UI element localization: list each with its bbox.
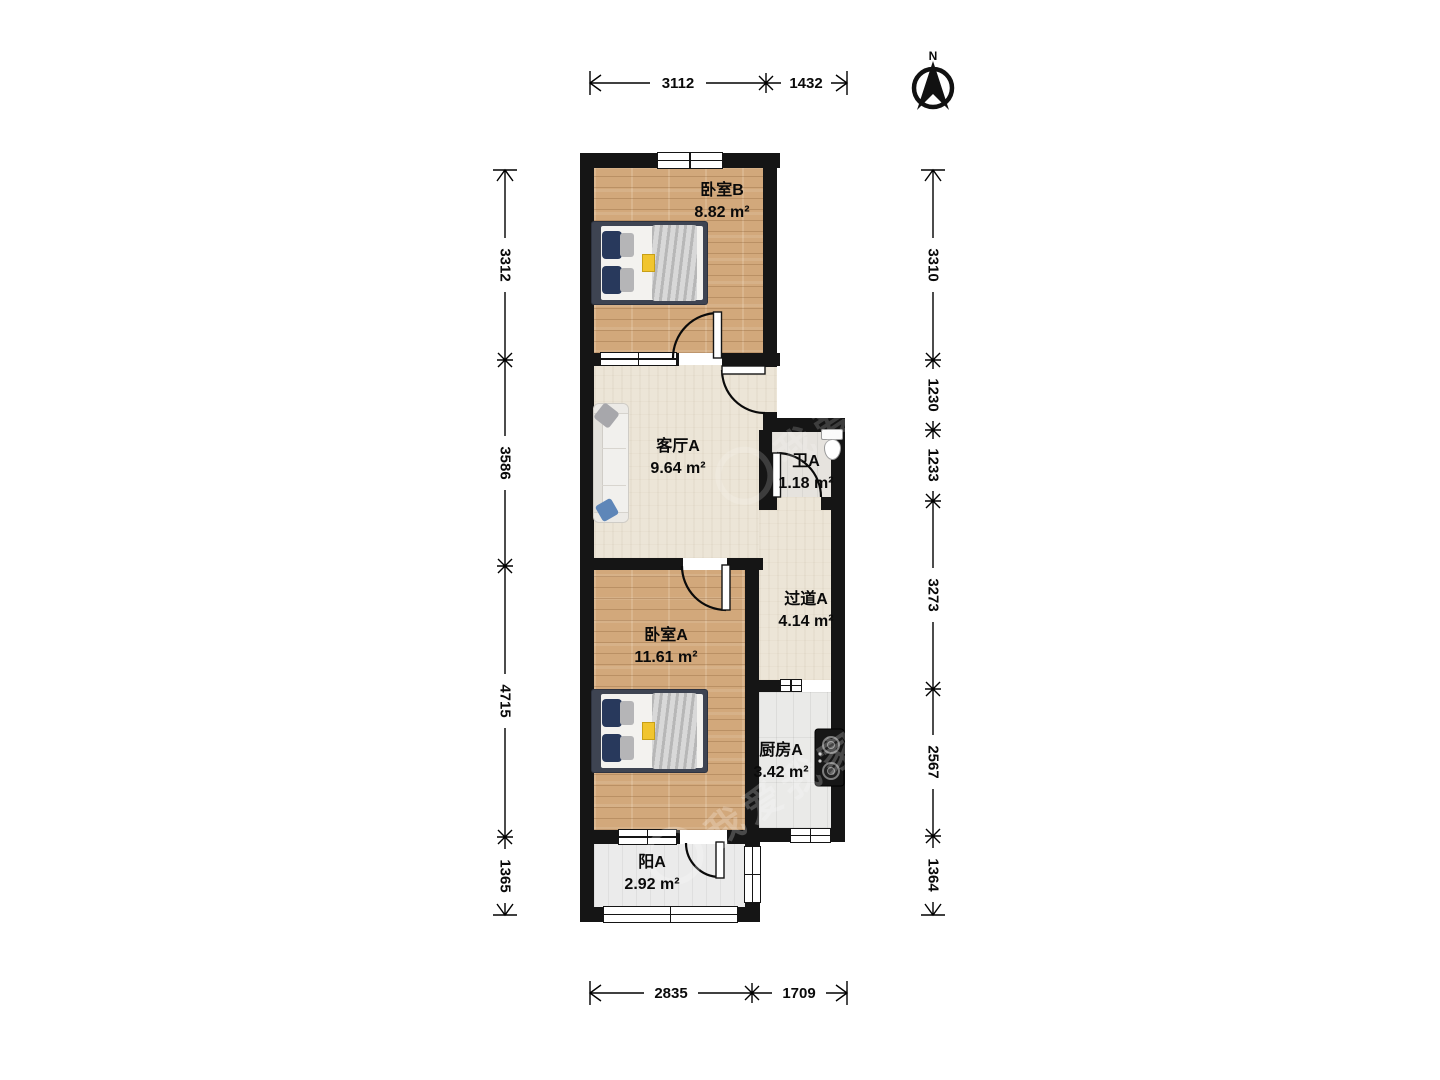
bed-icon-bedroom-a (592, 690, 707, 772)
sofa-icon (593, 403, 629, 523)
wall-right-upper (763, 153, 777, 367)
room-area: 8.82 m² (694, 202, 749, 224)
dim-value: 2567 (925, 745, 942, 778)
wall-bedroom-b-bottom-right (722, 353, 780, 366)
room-name: 过道A (778, 589, 833, 611)
bed-duvet (652, 225, 697, 301)
room-label-kitchen: 厨房A 3.42 m² (753, 740, 808, 784)
room-name: 厨房A (753, 740, 808, 762)
dimension-top: 3112 1432 (590, 71, 847, 95)
dim-value: 3273 (925, 578, 942, 611)
room-label-bathroom: 卫A 1.18 m² (778, 451, 833, 495)
dim-value: 1432 (789, 75, 822, 92)
compass-icon: N (914, 49, 952, 110)
room-area: 4.14 m² (778, 611, 833, 633)
window-bedroom-b-living (600, 352, 677, 366)
dimension-left: 3312 3586 4715 1365 (493, 170, 517, 915)
bed-tray-icon (642, 722, 655, 740)
wall-bathroom-bottom-left (759, 497, 777, 510)
window-balcony-bottom (603, 906, 738, 923)
dim-value: 4715 (497, 684, 514, 717)
room-name: 卧室A (634, 625, 697, 647)
room-area: 2.92 m² (624, 874, 679, 896)
pillow-icon (602, 266, 622, 294)
room-label-hallway: 过道A 4.14 m² (778, 589, 833, 633)
room-name: 卫A (778, 451, 833, 473)
dim-value: 3312 (497, 248, 514, 281)
room-area: 1.18 m² (778, 473, 833, 495)
room-label-balcony: 阳A 2.92 m² (624, 852, 679, 896)
pillow-icon (602, 699, 622, 727)
pillow-icon (602, 734, 622, 762)
floor-plan-page: 我爱我家 我爱我家 3112 1432 2835 1709 (0, 0, 1440, 1080)
sofa-seam (602, 485, 626, 486)
bed-icon-bedroom-b (592, 222, 707, 304)
dim-value: 1233 (925, 448, 942, 481)
dim-value: 3112 (662, 75, 695, 92)
bed-tray-icon (642, 254, 655, 272)
dim-value: 1365 (497, 859, 514, 892)
room-label-bedroom-a: 卧室A 11.61 m² (634, 625, 697, 669)
room-label-bedroom-b: 卧室B 8.82 m² (694, 180, 749, 224)
room-name: 客厅A (650, 436, 705, 458)
dim-value: 3586 (497, 446, 514, 479)
window-balcony-right (744, 846, 761, 903)
pillow-icon (620, 736, 634, 760)
pillow-icon (620, 233, 634, 257)
room-area: 9.64 m² (650, 458, 705, 480)
pillow-icon (620, 268, 634, 292)
stove-icon (814, 728, 846, 788)
room-name: 阳A (624, 852, 679, 874)
dim-value: 1230 (925, 378, 942, 411)
dimension-right: 3310 1230 1233 3273 2567 1364 (921, 170, 945, 915)
room-area: 3.42 m² (753, 762, 808, 784)
bed-duvet (652, 693, 697, 769)
room-name: 卧室B (694, 180, 749, 202)
wall-living-bottom-left (580, 558, 683, 570)
pillow-icon (602, 231, 622, 259)
compass-north-label: N (929, 49, 938, 63)
dim-value: 3310 (925, 248, 942, 281)
dim-value: 1709 (782, 985, 815, 1002)
dim-value: 1364 (925, 858, 942, 892)
sofa-seam (602, 448, 626, 449)
window-bedroom-b-top (657, 152, 723, 169)
pillow-icon (620, 701, 634, 725)
dimension-bottom: 2835 1709 (590, 981, 847, 1005)
wall-bathroom-bottom-right (821, 497, 845, 510)
wall-bedroom-a-right (745, 558, 759, 844)
wall-hall-kitchen-stub (745, 680, 782, 692)
room-label-living: 客厅A 9.64 m² (650, 436, 705, 480)
window-bedroom-a-balcony (618, 829, 677, 845)
wall-bedroom-a-bottom-stub (727, 830, 745, 844)
room-area: 11.61 m² (634, 647, 697, 669)
window-hallway-kitchen (780, 679, 802, 692)
window-kitchen-bottom (790, 828, 831, 843)
dim-value: 2835 (654, 985, 687, 1002)
